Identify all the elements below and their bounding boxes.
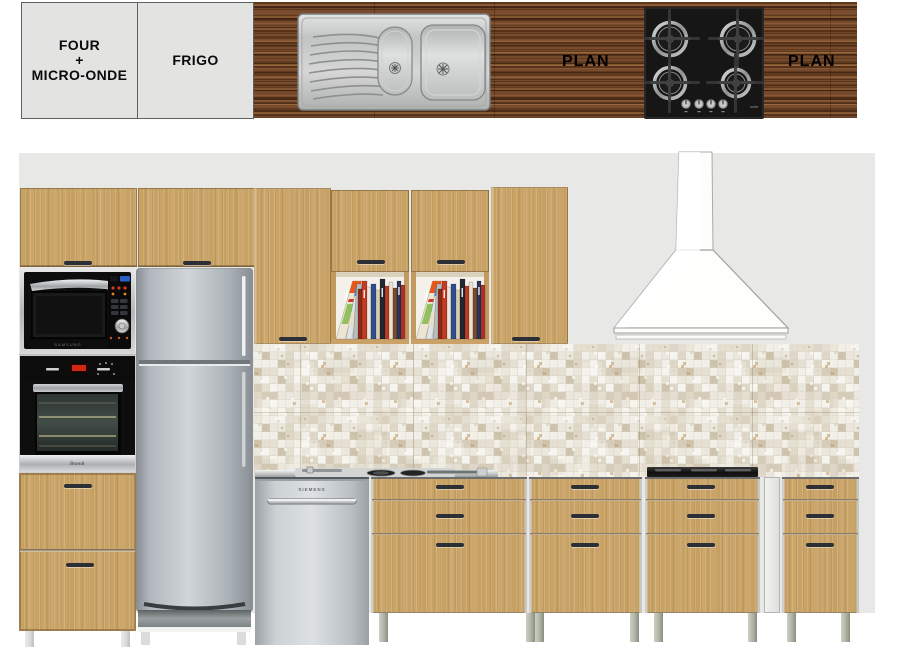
svg-text:Brandt: Brandt [69, 462, 85, 467]
svg-text:sche: sche [750, 104, 759, 109]
svg-text:SIEMENS: SIEMENS [298, 487, 325, 492]
svg-text:SAMSUNG: SAMSUNG [54, 342, 81, 347]
